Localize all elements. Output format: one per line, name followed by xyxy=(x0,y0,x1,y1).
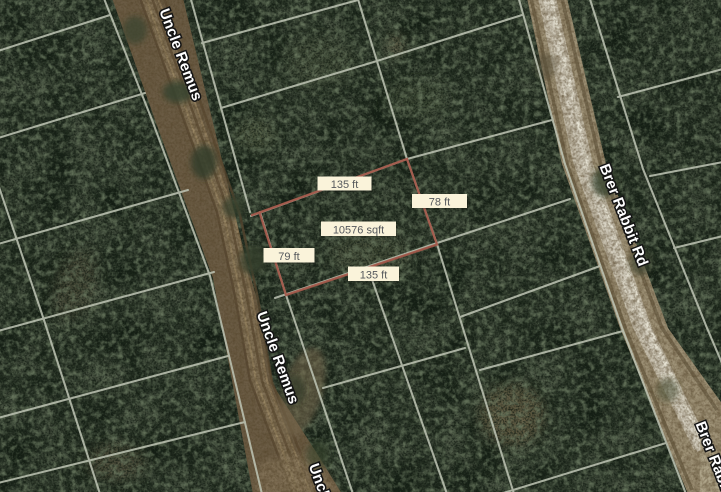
svg-text:10576 sqft: 10576 sqft xyxy=(333,225,384,237)
svg-text:135 ft: 135 ft xyxy=(331,179,359,191)
svg-text:78 ft: 78 ft xyxy=(429,197,450,209)
svg-text:79 ft: 79 ft xyxy=(278,251,299,263)
svg-text:135 ft: 135 ft xyxy=(360,270,388,282)
